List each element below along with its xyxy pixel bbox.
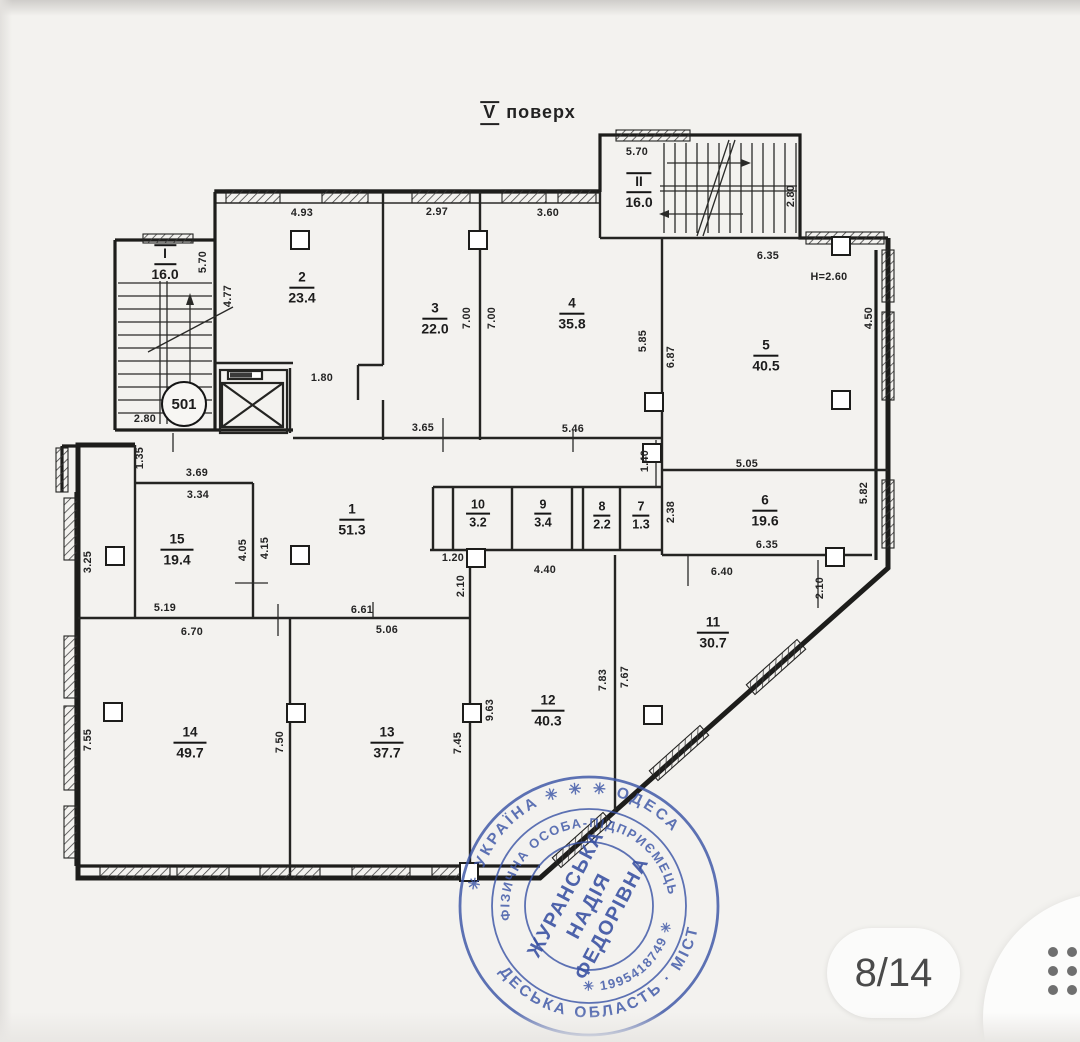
floor-numeral: V: [480, 101, 499, 125]
dim-label: 4.05: [237, 539, 249, 561]
room-label: 3 22.0: [421, 300, 448, 337]
dim-label: 1.35: [134, 447, 146, 469]
dim-label: H=2.60: [811, 271, 848, 283]
dim-label: 3.65: [412, 422, 434, 434]
dim-label: 6.35: [756, 539, 778, 551]
interior-walls: [78, 192, 888, 878]
dim-label: 4.77: [222, 285, 234, 307]
dim-label: 9.63: [484, 699, 496, 721]
room-label: 11 30.7: [697, 614, 729, 651]
page-title: V поверх: [480, 101, 576, 125]
dim-label: 2.80: [785, 185, 797, 207]
dim-label: 6.40: [711, 566, 733, 578]
dim-label: 4.93: [291, 207, 313, 219]
elevator-shaft: [220, 370, 287, 433]
photo-edge-shading: [0, 1012, 1080, 1042]
dim-label: 3.34: [187, 489, 209, 501]
dim-label: 7.00: [486, 307, 498, 329]
page-counter: 8/14: [827, 928, 960, 1018]
room-label: 15 19.4: [160, 531, 193, 568]
dim-label: 1.40: [639, 450, 651, 472]
room-label: 8 2.2: [593, 498, 610, 533]
dim-label: 2.97: [426, 206, 448, 218]
unit-number-badge: 501: [161, 381, 207, 427]
stairwell-label: II 16.0: [625, 172, 652, 210]
room-label: 10 3.2: [466, 496, 490, 531]
dim-label: 6.35: [757, 250, 779, 262]
dim-label: 7.67: [619, 666, 631, 688]
dim-label: 4.15: [259, 537, 271, 559]
floor-word: поверх: [506, 102, 575, 123]
dim-label: 5.85: [637, 330, 649, 352]
dim-label: 7.50: [274, 731, 286, 753]
dim-label: 6.61: [351, 604, 373, 616]
dim-label: 2.80: [134, 413, 156, 425]
dim-label: 5.70: [197, 251, 209, 273]
dim-label: 3.60: [537, 207, 559, 219]
dim-label: 6.87: [665, 346, 677, 368]
dim-label: 1.20: [442, 552, 464, 564]
room-label: 12 40.3: [531, 692, 564, 729]
room-label: 13 37.7: [370, 724, 403, 761]
dim-label: 5.46: [562, 423, 584, 435]
dim-label: 3.25: [82, 551, 94, 573]
dim-label: 7.00: [461, 307, 473, 329]
stairwell-label: I 16.0: [151, 244, 178, 282]
dim-label: 5.70: [626, 146, 648, 158]
room-label: 1 51.3: [338, 501, 365, 538]
dim-label: 7.83: [597, 669, 609, 691]
dim-label: 4.40: [534, 564, 556, 576]
dim-label: 6.70: [181, 626, 203, 638]
dim-label: 5.05: [736, 458, 758, 470]
dim-label: 5.82: [858, 482, 870, 504]
dim-label: 4.50: [863, 307, 875, 329]
photo-viewer-screen: ✳ УКРАЇНА ✳ ✳ ✳ ОДЕСА ОДЕСЬКА ОБЛАСТЬ · …: [0, 0, 1080, 1042]
dim-label: 5.06: [376, 624, 398, 636]
room-label: 9 3.4: [534, 496, 551, 531]
room-label: 6 19.6: [751, 492, 778, 529]
dim-label: 5.19: [154, 602, 176, 614]
room-label: 5 40.5: [752, 337, 779, 374]
room-label: 4 35.8: [558, 295, 585, 332]
dim-label: 2.38: [665, 501, 677, 523]
dim-label: 7.55: [82, 729, 94, 751]
dim-label: 7.45: [452, 732, 464, 754]
dim-label: 1.80: [311, 372, 333, 384]
dim-label: 2.10: [814, 577, 826, 599]
room-label: 7 1.3: [632, 498, 649, 533]
room-label: 14 49.7: [173, 724, 206, 761]
dim-label: 3.69: [186, 467, 208, 479]
dim-label: 2.10: [455, 575, 467, 597]
room-label: 2 23.4: [288, 269, 315, 306]
